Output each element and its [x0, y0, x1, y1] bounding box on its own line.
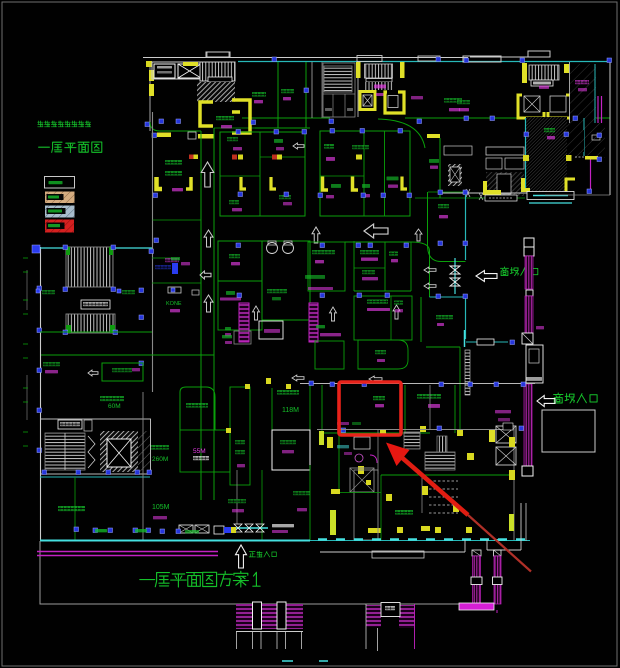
svg-text:260M: 260M — [152, 456, 168, 463]
svg-text:60M: 60M — [108, 403, 121, 410]
svg-text:118M: 118M — [282, 407, 299, 414]
svg-text:KONE: KONE — [166, 301, 182, 307]
svg-text:55M: 55M — [193, 448, 206, 455]
svg-text:105M: 105M — [152, 504, 170, 511]
